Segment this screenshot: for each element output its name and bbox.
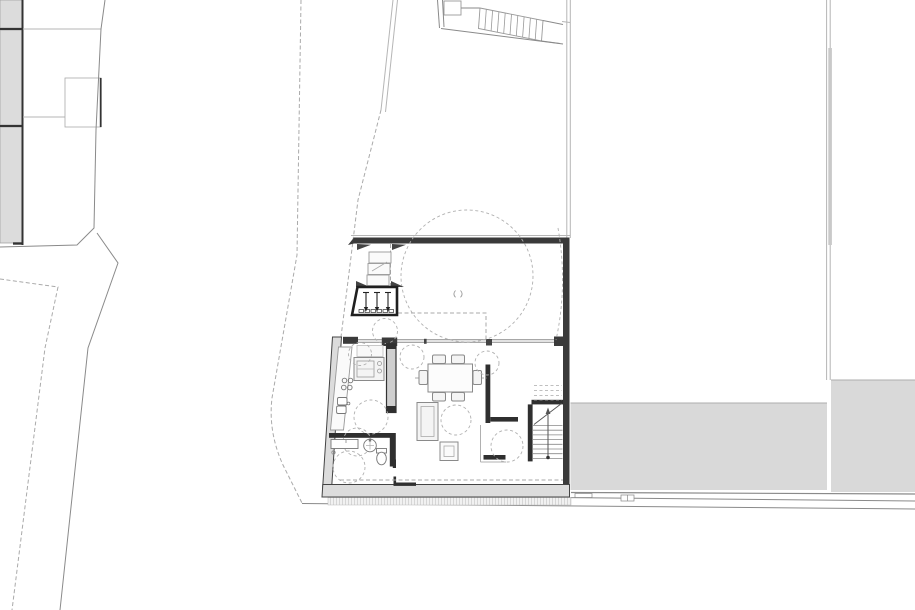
neighbor-annex-block [65,78,101,127]
turning-circle-large [401,210,533,342]
kitchen-clearance-circle [354,400,388,434]
south-door-leaf [394,483,417,486]
side-table [440,442,458,461]
wash-basin [364,439,377,452]
parcel-boundaries-right [562,0,832,380]
floor-plan-canvas [0,0,915,610]
boundary-dashed-mid [271,0,302,503]
courtyard [352,210,563,344]
external-staircase-top [438,0,564,44]
floor-plan-page [0,0,915,610]
south-wall [322,485,570,498]
drain-symbol [454,291,456,298]
dining-living [400,345,523,462]
threshold-hatch-strip [328,498,571,506]
toilet [377,449,387,465]
facade-mullion [424,339,427,344]
bath-wall-stub [393,460,396,469]
hall-wall-horizontal [490,417,518,422]
hall-wall-vertical [486,365,491,424]
turning-arc-east [556,228,563,340]
dining-table [428,364,473,392]
pavement-south [571,403,828,490]
rug-circle [441,405,471,435]
stair-wall-left [528,404,533,461]
east-wall [563,238,570,498]
entry-steps-box [352,287,397,315]
site-context [0,0,915,610]
bath-vanity [331,440,358,449]
drain-symbol-2 [461,291,463,298]
sofa [417,403,438,441]
glazed-facade [343,337,564,347]
street-line-south [60,233,118,610]
curb-mark [575,494,592,498]
clearance-circle-door-a [400,345,424,369]
drain-grate [621,495,634,501]
street-lines [0,0,398,610]
main-staircase [533,386,563,460]
stair-wall-top [532,400,564,405]
facade-wall-left [343,337,358,344]
courtyard-north-wall [354,238,569,244]
pavement-east [831,380,915,492]
neighbor-buildings-left [0,0,101,245]
facade-wall-right [554,337,564,347]
kitchen-wall-unit [387,344,397,413]
entry-ramp-steps [367,252,391,286]
kitchen-cupboard [357,346,383,357]
bath-wall-north [329,433,392,438]
boundary-dashed-left [0,279,58,610]
stair-treads-above-dashed [534,386,562,401]
facade-door-frame [486,339,492,346]
house-plan [322,210,570,497]
kitchen [331,343,389,457]
